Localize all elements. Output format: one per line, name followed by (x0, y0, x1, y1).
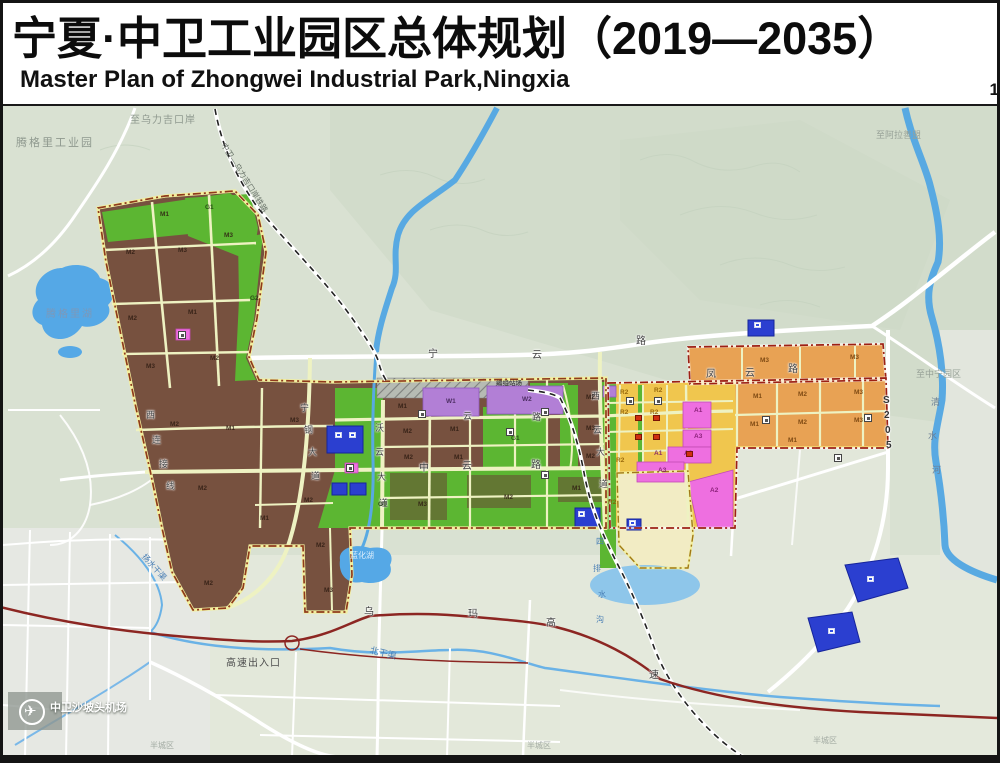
page-title: 宁夏·中卫工业园区总体规划（2019—2035） (12, 2, 902, 67)
lanhua-lake (340, 546, 392, 583)
page-number: 1 (990, 80, 999, 100)
poster-page: 宁夏·中卫工业园区总体规划（2019—2035） Master Plan of … (0, 0, 1000, 763)
page-subtitle: Master Plan of Zhongwei Industrial Park,… (20, 66, 569, 94)
master-plan-map (0, 106, 1000, 755)
airport-marker (8, 692, 62, 730)
header: 宁夏·中卫工业园区总体规划（2019—2035） Master Plan of … (0, 0, 1000, 106)
